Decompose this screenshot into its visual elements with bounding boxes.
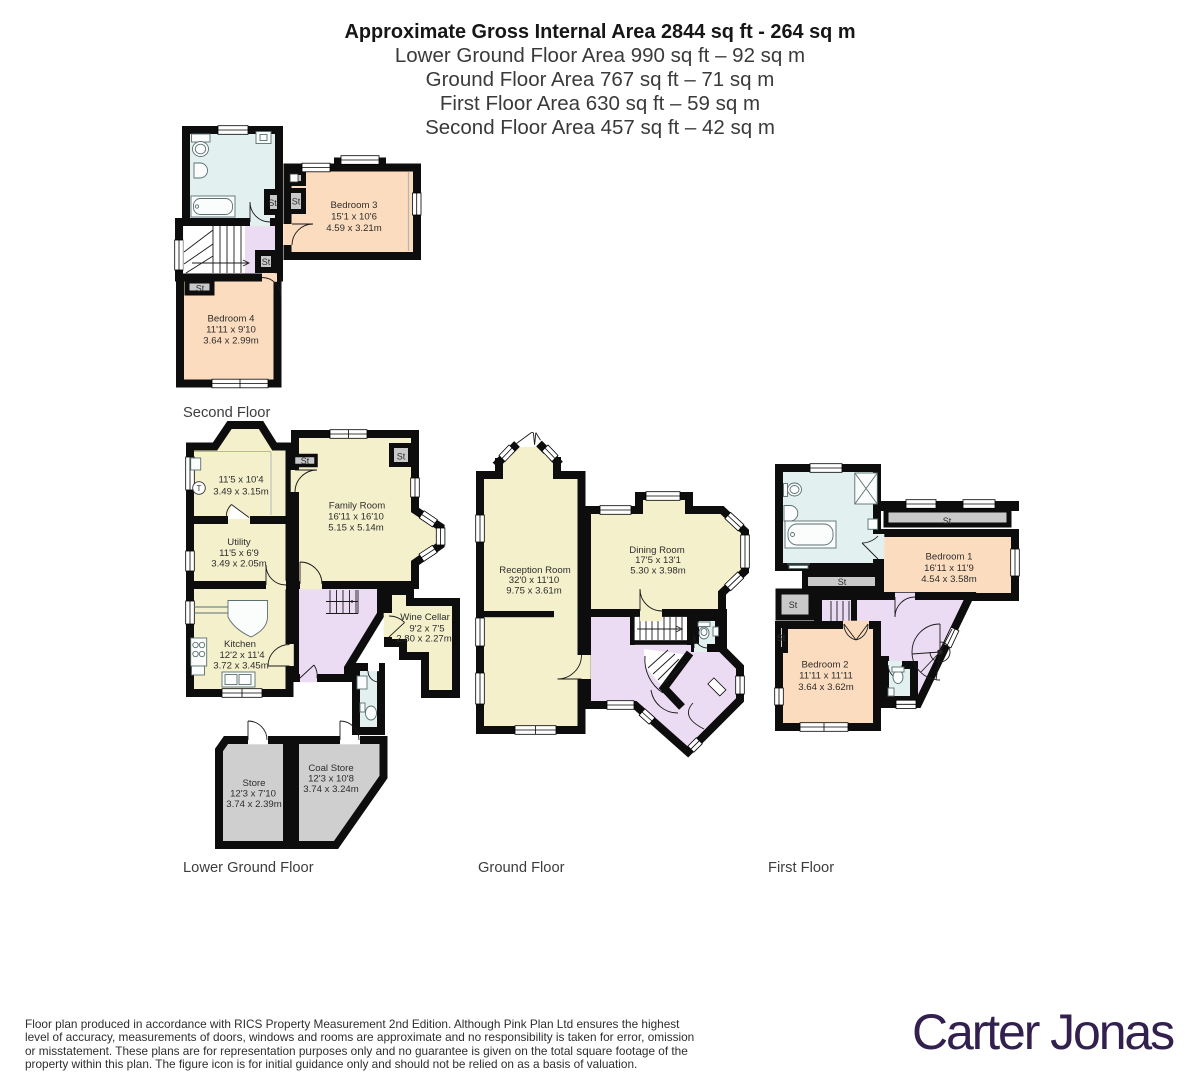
svg-text:9.75 x 3.61m: 9.75 x 3.61m: [506, 586, 561, 597]
svg-text:Lower Ground Floor: Lower Ground Floor: [183, 860, 314, 876]
svg-text:St: St: [838, 577, 847, 587]
svg-text:Bedroom 4: Bedroom 4: [208, 314, 256, 325]
svg-text:Kitchen: Kitchen: [224, 639, 256, 650]
svg-text:St: St: [196, 284, 205, 294]
svg-text:4.54 x 3.58m: 4.54 x 3.58m: [921, 574, 976, 585]
svg-text:First Floor: First Floor: [768, 860, 834, 876]
svg-text:3.49 x 3.15m: 3.49 x 3.15m: [213, 487, 268, 498]
svg-text:15'1 x 10'6: 15'1 x 10'6: [331, 212, 377, 223]
svg-text:12'2 x 11'4: 12'2 x 11'4: [219, 650, 265, 661]
svg-text:Wine Cellar: Wine Cellar: [400, 612, 450, 623]
svg-text:Bedroom 3: Bedroom 3: [331, 200, 378, 211]
svg-text:3.74 x 3.24m: 3.74 x 3.24m: [303, 784, 358, 795]
svg-text:Second Floor: Second Floor: [183, 405, 270, 421]
svg-text:St: St: [268, 198, 277, 208]
svg-text:St: St: [292, 197, 301, 207]
svg-text:5.15 x 5.14m: 5.15 x 5.14m: [328, 523, 383, 534]
svg-text:Ground Floor: Ground Floor: [478, 860, 565, 876]
svg-text:3.64 x 2.99m: 3.64 x 2.99m: [203, 336, 258, 347]
svg-text:St: St: [777, 633, 786, 643]
svg-text:3.64 x 3.62m: 3.64 x 3.62m: [798, 682, 853, 693]
svg-text:St: St: [397, 452, 406, 462]
svg-text:3.49 x 2.05m: 3.49 x 2.05m: [211, 558, 266, 569]
svg-text:12'3 x 7'10: 12'3 x 7'10: [230, 789, 276, 800]
svg-text:St: St: [943, 516, 952, 526]
svg-text:4.59 x 3.21m: 4.59 x 3.21m: [326, 223, 381, 234]
svg-text:Utility: Utility: [227, 537, 251, 548]
svg-text:St: St: [262, 257, 271, 267]
svg-text:Bedroom 2: Bedroom 2: [802, 660, 849, 671]
svg-text:16'11 x 16'10: 16'11 x 16'10: [328, 512, 384, 523]
svg-text:3.74 x 2.39m: 3.74 x 2.39m: [226, 799, 281, 810]
svg-text:5.30 x 3.98m: 5.30 x 3.98m: [630, 565, 685, 576]
svg-text:T: T: [197, 484, 202, 493]
svg-text:St: St: [301, 456, 310, 466]
svg-text:11'11 x 11'11: 11'11 x 11'11: [799, 671, 853, 682]
svg-text:11'5 x 6'9: 11'5 x 6'9: [219, 548, 259, 559]
svg-text:11'11 x 9'10: 11'11 x 9'10: [206, 325, 256, 336]
svg-text:Coal Store: Coal Store: [308, 763, 353, 774]
svg-text:Family Room: Family Room: [329, 500, 386, 511]
svg-text:Store: Store: [243, 778, 266, 789]
svg-text:St: St: [789, 600, 798, 610]
svg-text:12'3 x 10'8: 12'3 x 10'8: [308, 774, 354, 785]
svg-text:Bedroom 1: Bedroom 1: [926, 552, 973, 563]
svg-text:2.80 x 2.27m: 2.80 x 2.27m: [396, 634, 451, 645]
svg-text:3.72 x 3.45m: 3.72 x 3.45m: [213, 661, 268, 672]
svg-text:11'5 x 10'4: 11'5 x 10'4: [218, 475, 264, 486]
svg-text:16'11 x 11'9: 16'11 x 11'9: [924, 563, 974, 574]
